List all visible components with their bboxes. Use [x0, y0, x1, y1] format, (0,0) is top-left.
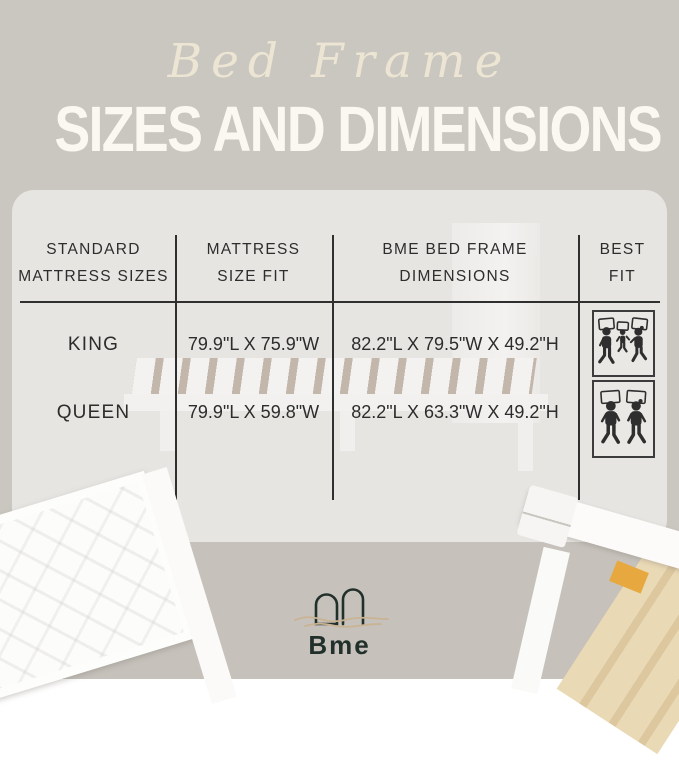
- bme-logo-arches-icon: [285, 580, 395, 632]
- column-header-standard-mattress-sizes: STANDARD MATTRESS SIZES: [12, 236, 175, 290]
- bed-photo-slats: [131, 358, 537, 398]
- column-header-best-fit: BEST FIT: [578, 236, 667, 290]
- header-script-title: Bed Frame: [0, 34, 679, 89]
- column-header-line: STANDARD: [12, 236, 175, 263]
- table-row-king-frame-dimensions: 82.2"L X 79.5"W X 49.2"H: [332, 334, 578, 355]
- infographic-root: Bed Frame SIZES AND DIMENSIONS STANDARD …: [0, 0, 679, 679]
- column-header-line: SIZE FIT: [175, 263, 332, 290]
- column-header-mattress-size-fit: MATTRESS SIZE FIT: [175, 236, 332, 290]
- column-header-line: FIT: [578, 263, 667, 290]
- table-row-queen-size: QUEEN: [12, 402, 175, 424]
- family-of-three-sleeping-icon: [596, 314, 651, 373]
- table-row-queen-frame-dimensions: 82.2"L X 63.3"W X 49.2"H: [332, 402, 578, 423]
- column-header-line: MATTRESS SIZES: [12, 263, 175, 290]
- table-row-king-mattress-fit: 79.9"L X 75.9"W: [175, 334, 332, 355]
- column-header-bme-bed-frame-dimensions: BME BED FRAME DIMENSIONS: [332, 236, 578, 290]
- brand-name: Bme: [0, 630, 679, 661]
- couple-sleeping-icon: [596, 384, 651, 454]
- page-title: SIZES AND DIMENSIONS: [54, 92, 624, 166]
- column-header-line: BME BED FRAME: [332, 236, 578, 263]
- table-row-queen-mattress-fit: 79.9"L X 59.8"W: [175, 402, 332, 423]
- column-header-line: BEST: [578, 236, 667, 263]
- column-header-line: MATTRESS: [175, 236, 332, 263]
- best-fit-box-queen: [592, 380, 655, 458]
- header-divider: [20, 301, 660, 303]
- best-fit-box-king: [592, 310, 655, 377]
- column-header-line: DIMENSIONS: [332, 263, 578, 290]
- table-row-king-size: KING: [12, 334, 175, 356]
- brand-footer: Bme: [0, 580, 679, 661]
